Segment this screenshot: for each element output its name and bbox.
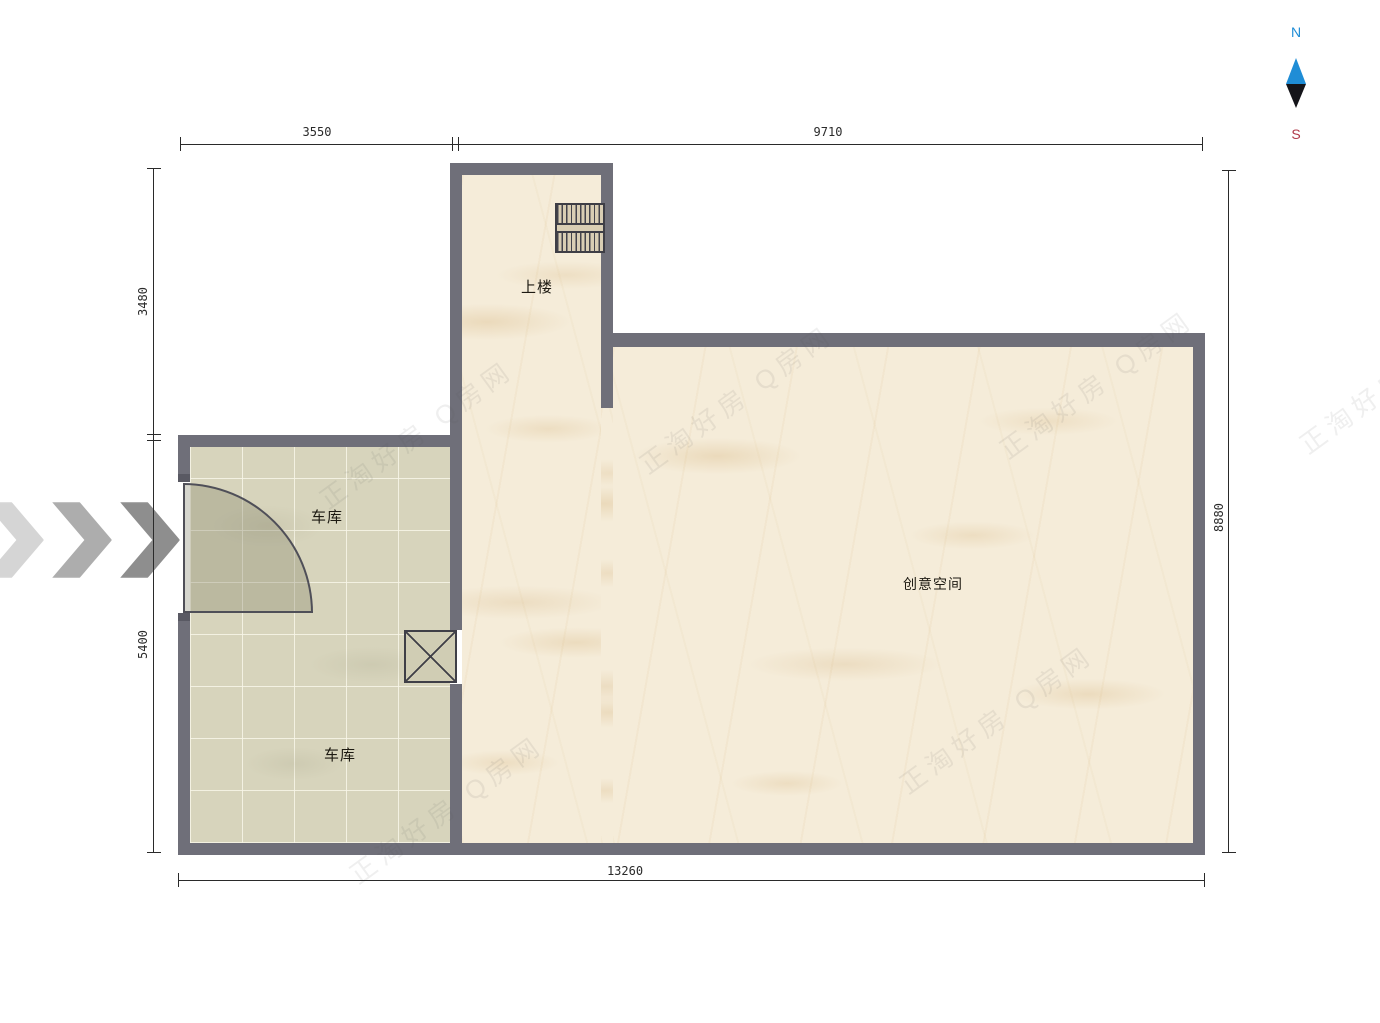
entrance-arrow-icon	[52, 502, 112, 578]
stair-flight	[557, 233, 603, 251]
dimension-tick	[1204, 873, 1205, 887]
dimension-tick	[147, 434, 161, 435]
room-label-garage-lower: 车库	[283, 744, 397, 765]
dimension-label: 9710	[770, 125, 886, 139]
watermark-text: 正淘好房 Q房网	[1291, 296, 1380, 462]
door-jamb	[178, 613, 190, 621]
wall-segment	[178, 843, 1205, 855]
dimension-label: 5400	[136, 605, 150, 685]
compass-south-label: S	[1278, 126, 1314, 142]
floor-strip	[601, 408, 613, 843]
stair-landing	[557, 223, 603, 233]
compass-icon: N S	[1278, 24, 1314, 154]
dimension-label: 13260	[565, 864, 685, 878]
dimension-tick	[452, 137, 453, 151]
wall-segment	[450, 447, 462, 630]
stairs-icon	[555, 203, 605, 253]
wall-segment	[178, 613, 190, 843]
room-label-creative-space: 创意空间	[855, 574, 1011, 594]
dimension-tick	[147, 852, 161, 853]
dimension-line-bottom	[178, 880, 1205, 881]
stair-flight	[557, 205, 603, 223]
dimension-tick	[180, 137, 181, 151]
wall-segment	[601, 163, 613, 408]
dimension-tick	[458, 137, 459, 151]
room-label-garage-upper: 车库	[270, 506, 384, 527]
room-label-upstairs: 上楼	[477, 276, 597, 297]
column-icon	[404, 630, 457, 683]
dimension-line-right	[1228, 170, 1229, 852]
dimension-label: 3550	[260, 125, 374, 139]
dimension-tick	[1222, 852, 1236, 853]
entrance-arrow-icon	[120, 502, 180, 578]
dimension-tick	[1222, 170, 1236, 171]
entrance-arrow-icon	[0, 502, 44, 578]
dimension-tick	[147, 168, 161, 169]
wall-segment	[450, 163, 613, 175]
compass-north-arrow-icon	[1286, 58, 1306, 84]
wall-segment	[1193, 333, 1205, 855]
dimension-line-top	[180, 144, 1202, 145]
floorplan-canvas: 上楼 车库 车库 创意空间 正淘好房 Q房网 正淘好房 Q房网 正淘好房 Q房网…	[0, 0, 1380, 1023]
wall-segment	[601, 333, 1205, 347]
compass-north-label: N	[1278, 24, 1314, 40]
dimension-tick	[1202, 137, 1203, 151]
dimension-line-left	[153, 168, 154, 852]
dimension-tick	[178, 873, 179, 887]
door-jamb	[178, 474, 190, 482]
dimension-tick	[147, 440, 161, 441]
dimension-label: 3480	[136, 262, 150, 342]
dimension-label: 8880	[1212, 478, 1226, 558]
compass-south-arrow-icon	[1286, 84, 1306, 108]
